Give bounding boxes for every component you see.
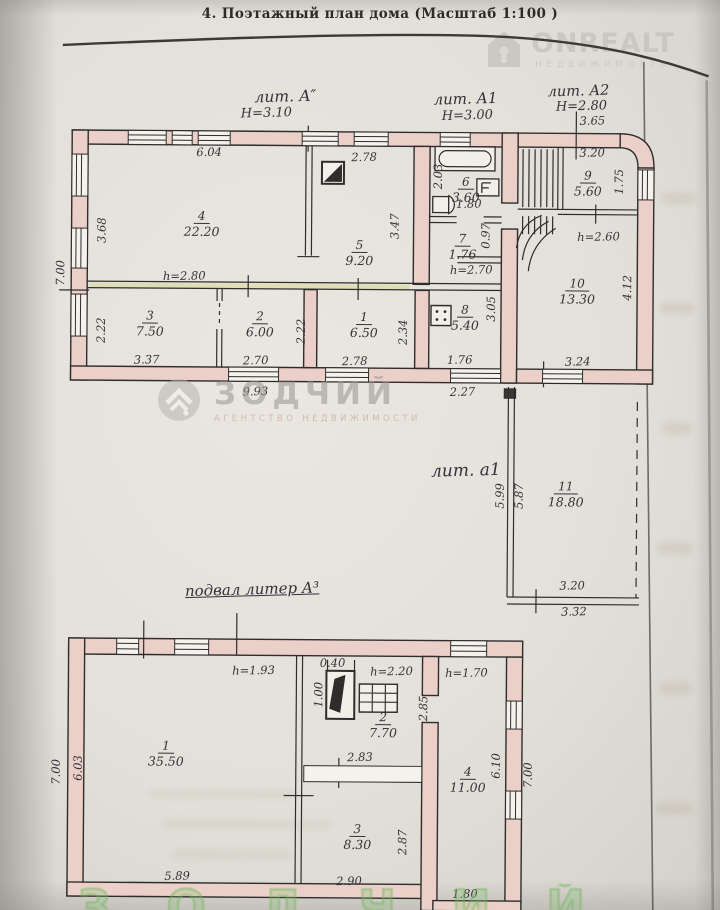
- green-brand-watermark: ЗОДЧИЙ: [78, 884, 698, 910]
- scanned-page: 4. Поэтажный план дома (Масштаб 1:100 ) …: [0, 0, 720, 910]
- a2-right-window: [638, 170, 654, 200]
- section-height-lit-a1: Н=3.00: [442, 108, 494, 124]
- zodchiy-brand: ЗОДЧИЙ: [214, 376, 421, 412]
- zodchiy-watermark: ЗОДЧИЙ АГЕНТСТВО НЕДВИЖИМОСТИ: [156, 376, 421, 424]
- section-height-lit-a2: Н=2.80: [556, 98, 608, 114]
- sink-icon: [433, 196, 455, 214]
- upper-left-windows: [71, 154, 88, 336]
- furnace-icon: [326, 671, 354, 719]
- heating-grid-icon: [359, 684, 397, 712]
- ink-bleed-smudges: [655, 192, 697, 814]
- floor-plan-drawing: [0, 0, 720, 910]
- zodchiy-logo-icon: [156, 377, 202, 423]
- section-label-lit-a1-annex: лит. а1: [431, 460, 501, 482]
- basement-bleed: [147, 789, 332, 860]
- basement-vent-wall: [304, 766, 422, 783]
- gas-stove-icon: [431, 305, 451, 325]
- section-height-lit-a: Н=3.10: [241, 105, 293, 121]
- bathtub-icon: [435, 147, 495, 171]
- floor-plan-area: лит. А″ Н=3.10 лит. А1 Н=3.00 лит. А2 Н=…: [0, 0, 720, 910]
- stove-icon: [322, 162, 344, 184]
- zodchiy-tagline: АГЕНТСТВО НЕДВИЖИМОСТИ: [214, 414, 421, 424]
- fixtures: [318, 146, 499, 720]
- section-label-basement: подвал литер А³: [185, 578, 320, 600]
- section-label-lit-a: лит. А″: [254, 87, 316, 107]
- section-label-lit-a1: лит. А1: [433, 89, 497, 109]
- windows: [67, 130, 654, 820]
- water-heater-icon: [477, 179, 499, 196]
